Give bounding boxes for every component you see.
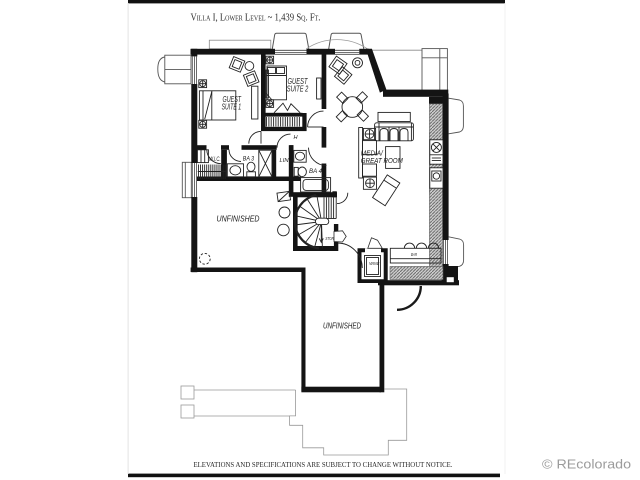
- svg-text:STOR: STOR: [325, 236, 334, 241]
- svg-text:SUITE 2: SUITE 2: [287, 85, 309, 94]
- svg-text:© REcolorado: © REcolorado: [542, 458, 631, 472]
- svg-text:ELEVATIONS AND SPECIFICATIONS: ELEVATIONS AND SPECIFICATIONS ARE SUBJEC…: [194, 461, 453, 469]
- svg-text:WINE: WINE: [369, 261, 380, 266]
- svg-text:BAR: BAR: [411, 252, 418, 257]
- svg-text:SUITE 1: SUITE 1: [222, 103, 242, 112]
- svg-text:BA 4: BA 4: [309, 168, 322, 175]
- svg-text:BA 3: BA 3: [243, 155, 255, 162]
- svg-text:W.I.C.: W.I.C.: [209, 156, 221, 163]
- svg-text:GREAT ROOM: GREAT ROOM: [361, 156, 404, 165]
- svg-text:UNFINISHED: UNFINISHED: [217, 215, 260, 224]
- svg-text:Villa I, Lower Level ~ 1,439 S: Villa I, Lower Level ~ 1,439 Sq. Ft.: [191, 13, 321, 24]
- svg-text:UNFINISHED: UNFINISHED: [323, 322, 361, 331]
- svg-text:LIN: LIN: [280, 158, 290, 164]
